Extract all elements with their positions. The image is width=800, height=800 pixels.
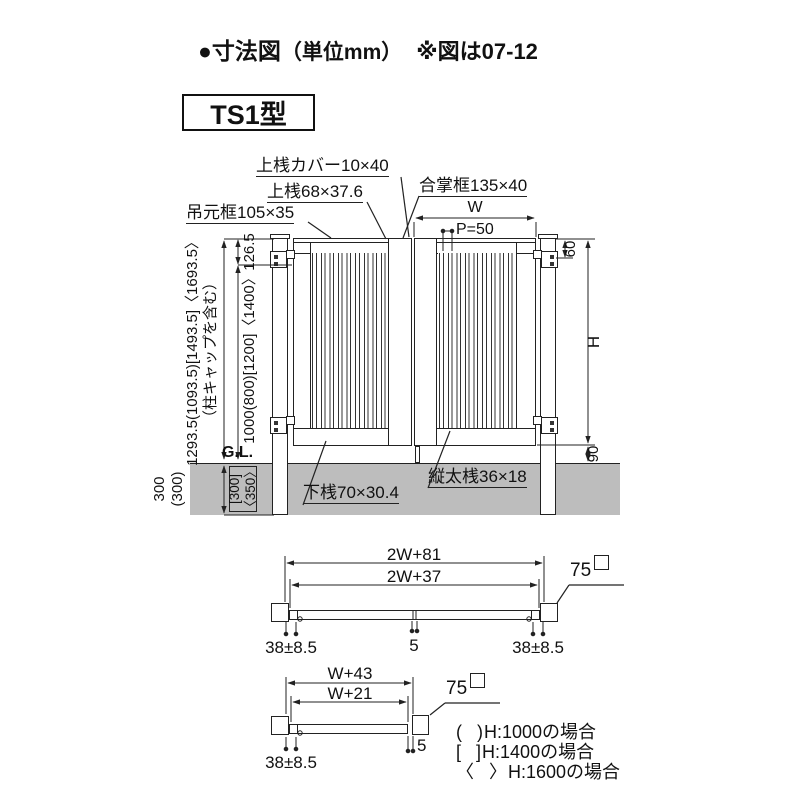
- left-bottom-rail-line: [293, 428, 388, 429]
- hinge-bolt: [274, 421, 278, 425]
- label-hanging-stile: 吊元框105×35: [186, 204, 294, 222]
- left-top-hinge: [270, 251, 287, 268]
- left-bottom-hinge-arm: [286, 416, 295, 425]
- label-vertical-bar: 縦太桟36×18: [428, 468, 527, 486]
- plan1-right-end-cap: [531, 610, 540, 620]
- plan2-gate-bar: [289, 724, 408, 734]
- label-top-rail: 上桟68×37.6: [267, 183, 363, 201]
- plan1-left-post: [271, 603, 289, 622]
- dim-embed-depth-left: 300 (300): [151, 471, 187, 506]
- plan2-right-post: [412, 715, 429, 735]
- label-top-rail-cover: 上桟カバー10×40: [256, 157, 389, 175]
- plan2-left-end-cap: [289, 724, 298, 734]
- dim-gate-height: 1000(800)[1200]〈1400〉: [241, 270, 259, 443]
- plan1-dim-side-right: 38±8.5: [512, 639, 564, 657]
- drop-rod: [415, 446, 420, 463]
- left-slat-panel: [311, 253, 388, 428]
- plan1-right-post: [540, 603, 558, 622]
- plan2-dim-inner: W+21: [328, 685, 373, 703]
- label-meeting-stile: 合掌框135×40: [419, 177, 527, 195]
- plan1-square-symbol-icon: [594, 555, 609, 570]
- plan1-gate-bar: [289, 610, 540, 620]
- model-name-box: TS1型: [182, 94, 315, 131]
- page-title: ●寸法図（単位mm）※図は07-12: [198, 32, 538, 66]
- plan2-square-symbol-icon: [470, 673, 485, 688]
- right-hanging-stile-line: [516, 242, 517, 428]
- left-post: [272, 238, 288, 515]
- plan1-dim-side-left: 38±8.5: [265, 639, 317, 657]
- dim-bottom-gap: 90: [585, 446, 603, 463]
- left-meeting-stile: [388, 238, 412, 446]
- right-top-rail-cover-line: [437, 242, 536, 243]
- left-top-rail-cover-line: [293, 242, 388, 243]
- plan1-left-end-cap: [289, 610, 298, 620]
- right-slat-panel: [438, 253, 516, 428]
- unit-note: （単位mm）: [281, 41, 402, 64]
- plan2-dim-side-left: 38±8.5: [265, 754, 317, 772]
- hinge-bolt: [274, 255, 278, 259]
- hinge-bolt: [550, 428, 554, 432]
- plan2-post-size: 75: [446, 679, 467, 699]
- right-bottom-rail-line: [437, 428, 536, 429]
- plan2-dim-outer: W+43: [328, 665, 373, 683]
- dim-total-height: 1293.5(1093.5)[1493.5]〈1693.5〉 （柱キャップを含む…: [184, 234, 220, 466]
- dimension-drawing-page: ●寸法図（単位mm）※図は07-12 TS1型: [0, 0, 800, 800]
- hinge-bolt: [550, 421, 554, 425]
- dim-height-h: H: [584, 336, 604, 348]
- right-meeting-stile: [414, 238, 437, 446]
- dim-top-offset: 126.5: [241, 233, 259, 271]
- plan1-post-size: 75: [570, 561, 591, 581]
- dim-embed-depth-right: [300] 〈350〉: [227, 464, 259, 514]
- left-bottom-hinge: [270, 417, 287, 434]
- hinge-bolt: [550, 255, 554, 259]
- plan1-dim-center-gap: 5: [409, 637, 418, 655]
- dim-hinge-top-offset: 60: [562, 241, 580, 258]
- left-top-hinge-arm: [286, 250, 295, 259]
- model-name: TS1型: [210, 93, 287, 132]
- hinge-bolt: [274, 262, 278, 266]
- ground-line-label: G.L.: [222, 445, 253, 462]
- plan2-left-post: [271, 716, 289, 735]
- dim-leaf-width: W: [467, 200, 482, 217]
- bullet-icon: ●: [198, 38, 212, 64]
- hinge-bolt: [274, 428, 278, 432]
- title-text: 寸法図: [212, 38, 281, 64]
- dim-slat-pitch: P=50: [456, 222, 494, 239]
- right-post: [540, 238, 556, 515]
- plan2-dim-end-gap: 5: [417, 737, 426, 755]
- legend-row-h1600: 〈〉H:1600の場合: [456, 758, 620, 784]
- figure-note: ※図は07-12: [416, 39, 538, 64]
- plan1-dim-inner: 2W+37: [387, 568, 441, 586]
- hinge-bolt: [550, 262, 554, 266]
- plan1-dim-outer: 2W+81: [387, 546, 441, 564]
- label-bottom-rail: 下桟70×30.4: [303, 484, 399, 502]
